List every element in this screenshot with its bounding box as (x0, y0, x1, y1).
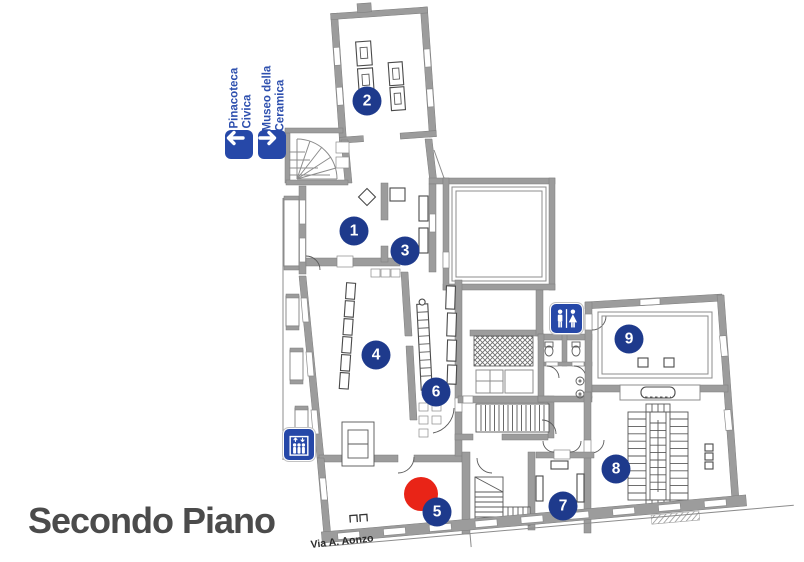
floor-plan-page: Pinacoteca Civica Museo della Ceramica (0, 0, 804, 562)
label-pinacoteca-civica: Pinacoteca Civica (229, 53, 254, 129)
arrow-left-icon (225, 130, 245, 146)
display-cases-room-4 (339, 283, 355, 389)
terrace-room (443, 178, 555, 290)
room-2 (330, 0, 436, 143)
long-display-table (416, 299, 432, 395)
shelving-unit (628, 404, 688, 508)
red-location-dot (404, 477, 438, 511)
restroom-icon (551, 304, 582, 333)
label-museo-della-ceramica: Museo della Ceramica (262, 54, 287, 132)
label-line: Ceramica (274, 54, 287, 132)
floor-plan-drawing (0, 0, 804, 562)
arrow-right-icon (258, 130, 278, 146)
corridor-room-2 (341, 139, 444, 183)
floor-title: Secondo Piano (28, 500, 275, 542)
room-5 (317, 422, 374, 537)
main-staircase (455, 396, 554, 440)
street-wall (321, 491, 795, 560)
label-line: Museo della (262, 54, 275, 132)
display-cases-room-2 (356, 39, 406, 113)
label-line: Civica (241, 53, 254, 129)
room-6 (401, 272, 462, 456)
restroom-sign (550, 303, 583, 334)
direction-sign-museo (258, 130, 286, 159)
tables-symbol (350, 514, 367, 522)
diamond-exhibit (359, 189, 376, 206)
label-line: Pinacoteca (229, 53, 242, 129)
elevator-shaft (342, 422, 374, 466)
elevator-icon (284, 429, 314, 460)
direction-sign-pinacoteca (225, 130, 253, 159)
void-hatch (470, 290, 543, 393)
elevator-sign (283, 428, 315, 461)
bench (641, 387, 675, 398)
